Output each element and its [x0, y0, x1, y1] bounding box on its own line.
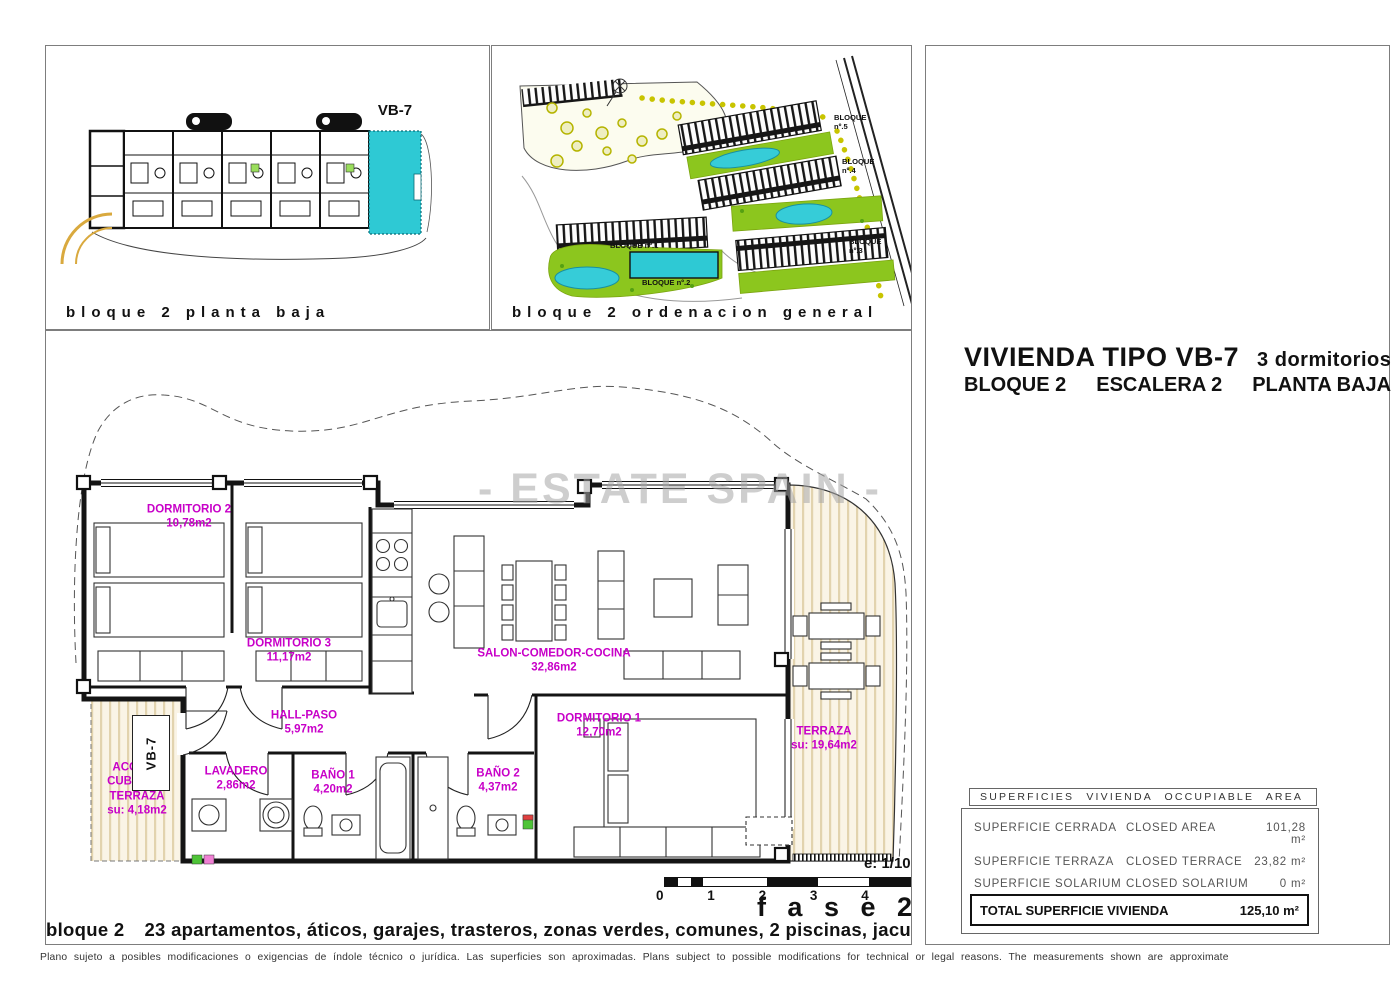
floor-plan-panel: - ESTATE SPAIN - DORMITORIO 2 10,78m2 DO…	[45, 330, 912, 945]
room-label-dormitorio-3: DORMITORIO 3 11,17m2	[247, 637, 331, 666]
bloque-label: BLOQUE 2	[964, 374, 1066, 396]
scale-bar	[664, 877, 912, 887]
scale-label: e: 1/100	[786, 855, 912, 872]
site-label-bloque-5: BLOQUE nº.5	[834, 114, 872, 131]
site-label-bloque-3: BLOQUE nº.3	[849, 238, 887, 255]
block-plan-drawing	[46, 46, 489, 329]
room-label-lavadero: LAVADERO 2,86m2	[205, 765, 268, 794]
plan-sheet: VB-7 bloque 2 planta baja	[0, 0, 1400, 995]
table-row: SUPERFICIE TERRAZA CLOSED TERRACE 23,82 …	[962, 856, 1318, 868]
floor-plan-drawing	[46, 331, 911, 944]
disclaimer: Plano sujeto a posibles modificaciones o…	[40, 952, 1375, 963]
unit-type-title: VIVIENDA TIPO VB-7	[964, 342, 1239, 372]
room-label-dormitorio-2: DORMITORIO 2 10,78m2	[147, 503, 231, 532]
room-label-bano-1: BAÑO 1 4,20m2	[311, 769, 354, 798]
block-plan-panel: VB-7 bloque 2 planta baja	[45, 45, 490, 330]
room-label-hall: HALL-PASO 5,97m2	[271, 709, 337, 738]
site-label-bloque-4: BLOQUE nº.4	[842, 158, 880, 175]
planta-label: PLANTA BAJA	[1252, 374, 1391, 396]
site-plan-caption: bloque 2 ordenacion general	[512, 304, 878, 321]
bedrooms-label: 3 dormitorios	[1257, 349, 1391, 371]
site-plan-drawing	[492, 46, 911, 329]
room-label-dormitorio-1: DORMITORIO 1 12,70m2	[557, 712, 641, 741]
room-label-bano-2: BAÑO 2 4,37m2	[476, 767, 519, 796]
info-panel: VIVIENDA TIPO VB-73 dormitorios BLOQUE 2…	[925, 45, 1390, 945]
entrance-marker: VB-7	[132, 715, 170, 791]
title-block: VIVIENDA TIPO VB-73 dormitorios BLOQUE 2…	[964, 342, 1400, 397]
site-label-bloque-1: BLOQUE nº.1	[610, 242, 658, 251]
table-row: SUPERFICIE SOLARIUM CLOSED SOLARIUM 0 m²	[962, 878, 1318, 890]
surfaces-header: SUPERFICIES VIVIENDA OCCUPIABLE AREA	[969, 788, 1317, 806]
room-label-terraza: TERRAZA su: 19,64m2	[791, 725, 857, 754]
block-plan-caption: bloque 2 planta baja	[66, 304, 330, 321]
development-caption: bloque 223 apartamentos, áticos, garajes…	[46, 919, 911, 941]
table-row: SUPERFICIE CERRADA CLOSED AREA 101,28 m²	[962, 822, 1318, 846]
total-row: TOTAL SUPERFICIE VIVIENDA 125,10 m²	[970, 894, 1309, 926]
total-value: 125,10 m²	[1240, 903, 1299, 918]
block-highlight-label: VB-7	[364, 102, 426, 119]
total-label: TOTAL SUPERFICIE VIVIENDA	[980, 903, 1169, 918]
escalera-label: ESCALERA 2	[1096, 374, 1222, 396]
site-plan-panel: BLOQUE nº.1 BLOQUE nº.2 BLOQUE nº.3 BLOQ…	[491, 45, 912, 330]
site-label-bloque-2: BLOQUE nº.2	[642, 279, 690, 288]
surfaces-table: SUPERFICIE CERRADA CLOSED AREA 101,28 m²…	[961, 808, 1319, 934]
room-label-salon: SALON-COMEDOR-COCINA 32,86m2	[477, 647, 630, 676]
